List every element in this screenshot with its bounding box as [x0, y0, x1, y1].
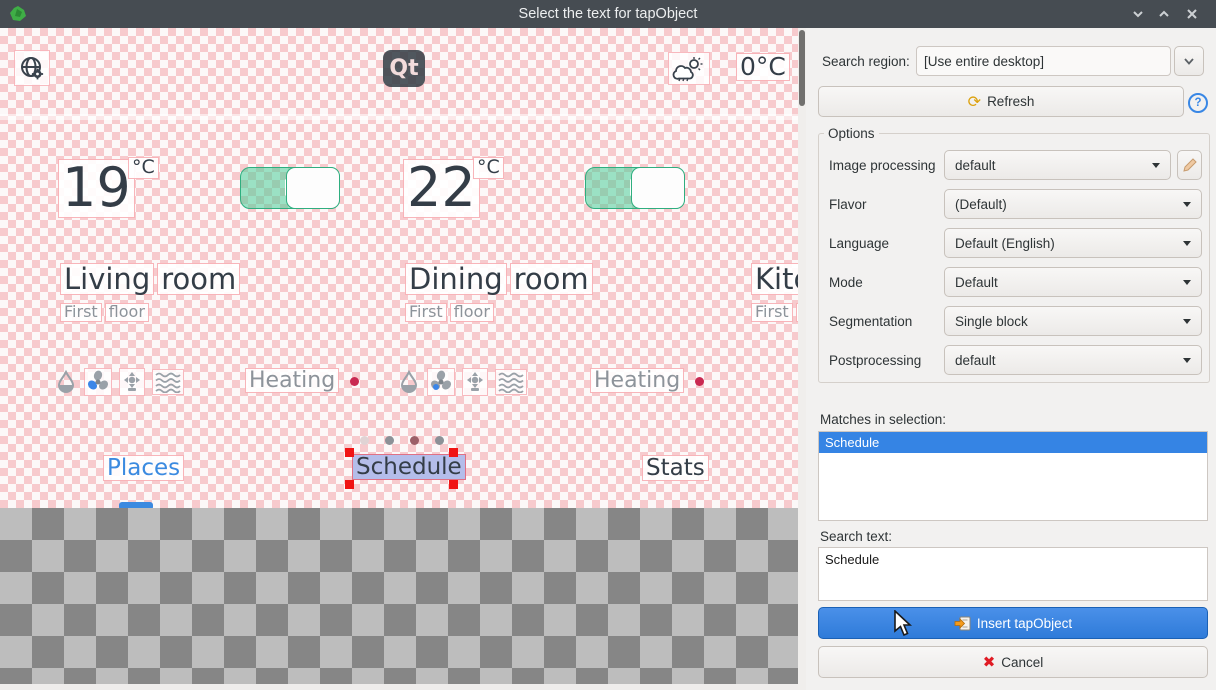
pencil-icon — [1182, 158, 1197, 173]
page-dot — [360, 436, 369, 445]
image-processing-combo[interactable]: default — [944, 150, 1171, 180]
desktop-checker-area — [0, 508, 798, 684]
combo-value: (Default) — [955, 197, 1007, 212]
living-room-icons — [55, 368, 184, 396]
chevron-up-icon — [1157, 7, 1171, 21]
mouse-cursor — [893, 610, 915, 638]
close-icon — [1185, 7, 1199, 21]
help-button[interactable]: ? — [1188, 93, 1208, 113]
valve-icon — [119, 368, 145, 396]
search-region-dropdown-button[interactable] — [1174, 46, 1204, 76]
image-processing-label: Image processing — [829, 158, 936, 173]
selection-handle-top-right[interactable] — [449, 448, 458, 457]
refresh-icon: ⟳ — [968, 92, 981, 111]
fan-icon — [84, 368, 112, 396]
outside-temperature: 0°C — [736, 52, 793, 81]
pagination-dots — [360, 432, 460, 450]
mode-label: Mode — [829, 275, 863, 290]
ocr-options-panel: Search region: [Use entire desktop] ⟳ Re… — [806, 28, 1216, 690]
language-combo[interactable]: Default (English) — [944, 228, 1202, 258]
titlebar: Select the text for tapObject — [0, 0, 1216, 28]
matches-list[interactable]: Schedule — [818, 431, 1208, 521]
water-drop-icon — [55, 370, 77, 394]
close-button[interactable] — [1180, 0, 1204, 28]
page-dot — [410, 436, 419, 445]
combo-value: default — [955, 158, 996, 173]
matches-label: Matches in selection: — [820, 412, 946, 427]
weather-icon — [668, 52, 710, 85]
chevron-down-icon — [1182, 54, 1196, 68]
selection-handle-bottom-left[interactable] — [345, 480, 354, 489]
cancel-x-icon: ✖ — [983, 653, 996, 671]
dining-room-floor: Firstfloor — [405, 302, 497, 322]
living-room-toggle — [240, 167, 340, 209]
living-room-temp-unit: °C — [128, 156, 162, 179]
maximize-button[interactable] — [1152, 0, 1176, 28]
app-icon — [8, 4, 28, 24]
dining-room-status: Heating — [590, 368, 704, 393]
insert-tapobject-button[interactable]: Insert tapObject — [818, 607, 1208, 639]
living-room-floor: Firstfloor — [60, 302, 152, 322]
window-title: Select the text for tapObject — [519, 6, 698, 22]
postprocessing-label: Postprocessing — [829, 353, 921, 368]
status-dot — [695, 377, 704, 386]
living-room-temp: 19 — [58, 156, 138, 219]
scrollbar-thumb[interactable] — [799, 30, 805, 106]
edit-image-processing-button[interactable] — [1177, 150, 1202, 180]
search-text-input[interactable]: Schedule — [818, 547, 1208, 601]
kitchen-room-floor: Firstflo — [751, 302, 798, 322]
water-drop-icon — [398, 370, 420, 394]
search-region-value: [Use entire desktop] — [924, 54, 1044, 69]
page-dot — [435, 436, 444, 445]
dining-room-name: Diningroom — [405, 262, 596, 296]
search-text-label: Search text: — [820, 529, 892, 544]
combo-arrow-icon — [1183, 241, 1191, 246]
living-room-status: Heating — [245, 368, 359, 393]
combo-arrow-icon — [1183, 358, 1191, 363]
search-region-field[interactable]: [Use entire desktop] — [916, 46, 1171, 76]
minimize-button[interactable] — [1126, 0, 1150, 28]
insert-icon — [954, 616, 971, 631]
horizontal-scrollbar[interactable] — [0, 684, 798, 690]
valve-icon — [462, 368, 488, 396]
flavor-combo[interactable]: (Default) — [944, 189, 1202, 219]
combo-arrow-icon — [1183, 319, 1191, 324]
postprocessing-combo[interactable]: default — [944, 345, 1202, 375]
segmentation-label: Segmentation — [829, 314, 912, 329]
dining-room-toggle — [585, 167, 685, 209]
header-divider — [0, 114, 798, 120]
waves-icon — [495, 369, 527, 395]
cancel-label: Cancel — [1001, 655, 1043, 670]
status-dot — [350, 377, 359, 386]
kitchen-room-name: Kitc — [751, 262, 798, 296]
fan-icon — [427, 368, 455, 396]
refresh-button[interactable]: ⟳ Refresh — [818, 86, 1184, 117]
chevron-down-icon — [1131, 7, 1145, 21]
globe-settings-icon — [14, 50, 50, 86]
help-icon: ? — [1194, 97, 1201, 109]
language-label: Language — [829, 236, 889, 251]
combo-value: default — [955, 353, 996, 368]
dining-room-temp: 22 — [403, 156, 483, 219]
tab-places: Places — [103, 455, 187, 481]
living-room-name: Livingroom — [60, 262, 243, 296]
match-item-selected[interactable]: Schedule — [819, 432, 1207, 453]
waves-icon — [152, 369, 184, 395]
combo-arrow-icon — [1152, 163, 1160, 168]
search-region-label: Search region: — [822, 54, 910, 69]
insert-label: Insert tapObject — [977, 616, 1072, 631]
dining-room-temp-unit: °C — [473, 156, 507, 179]
flavor-label: Flavor — [829, 197, 867, 212]
dining-room-icons — [398, 368, 527, 396]
refresh-label: Refresh — [987, 94, 1034, 109]
page-dot — [385, 436, 394, 445]
combo-value: Default (English) — [955, 236, 1055, 251]
segmentation-combo[interactable]: Single block — [944, 306, 1202, 336]
combo-value: Default — [955, 275, 998, 290]
cancel-button[interactable]: ✖ Cancel — [818, 646, 1208, 678]
tab-schedule-selected: Schedule — [352, 454, 469, 480]
options-group-title: Options — [824, 126, 879, 141]
combo-arrow-icon — [1183, 202, 1191, 207]
mode-combo[interactable]: Default — [944, 267, 1202, 297]
search-text-value: Schedule — [825, 552, 879, 567]
combo-arrow-icon — [1183, 280, 1191, 285]
combo-value: Single block — [955, 314, 1028, 329]
selection-handle-top-left[interactable] — [345, 448, 354, 457]
screenshot-preview[interactable]: Qt 0°C 19 °C Livingroom Firstfloor Heati… — [0, 28, 798, 690]
qt-logo: Qt — [383, 50, 425, 87]
preview-scrollbar[interactable] — [798, 28, 806, 690]
tab-stats: Stats — [642, 455, 712, 481]
selection-handle-bottom-right[interactable] — [449, 480, 458, 489]
